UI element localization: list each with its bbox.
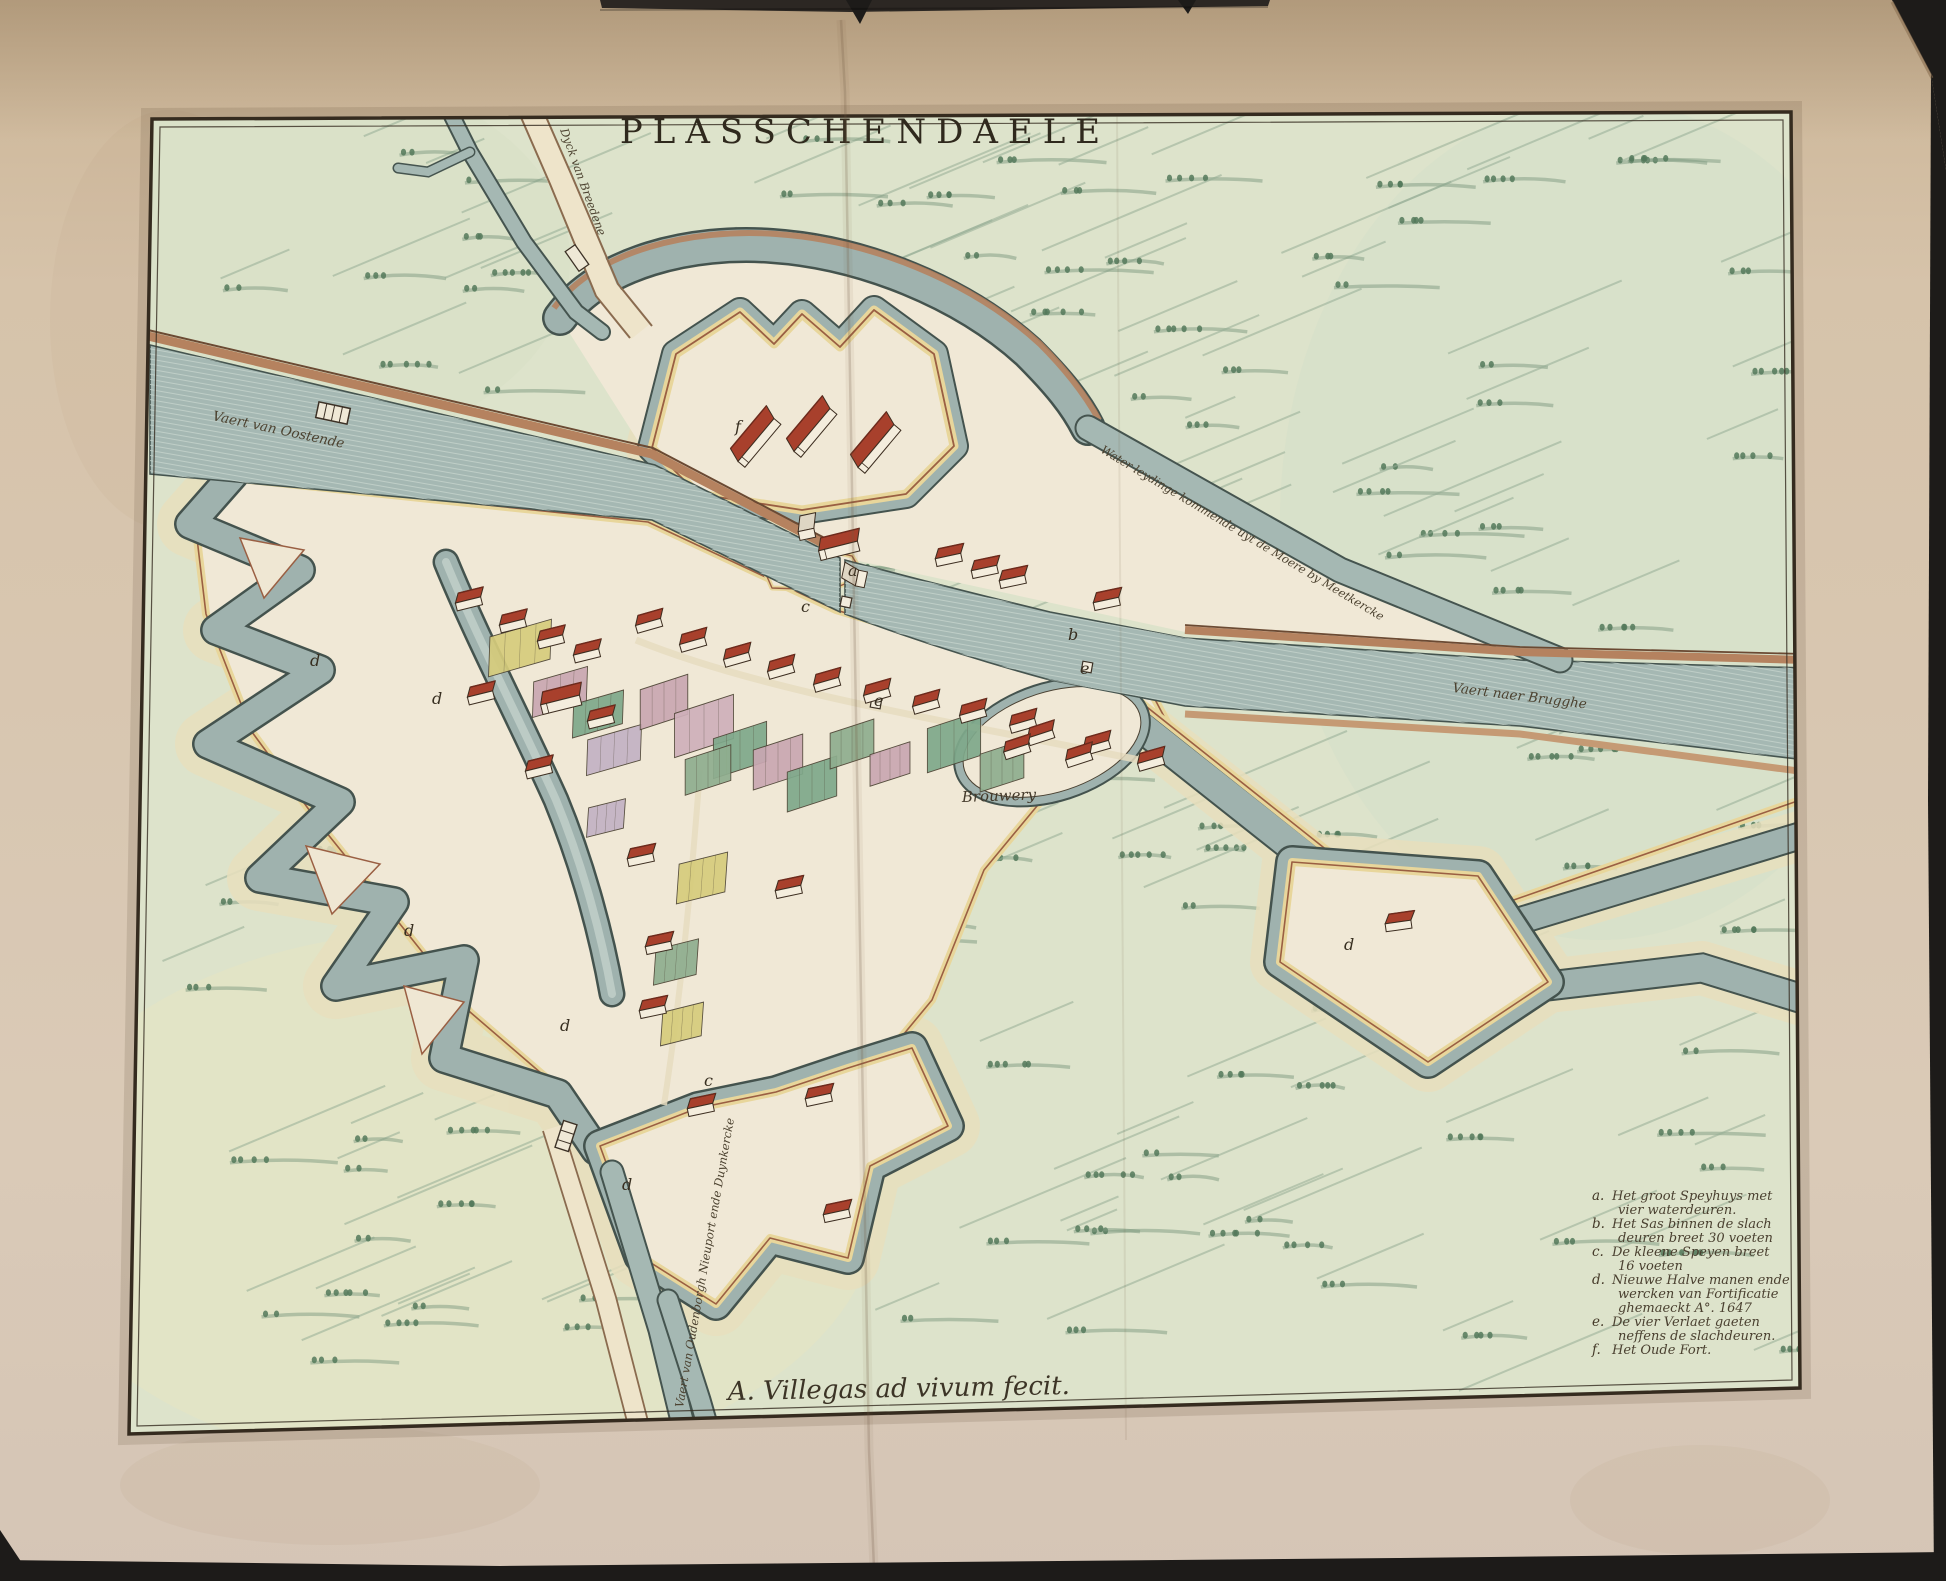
letter-d: d [310,651,320,670]
legend-key: f. [1591,1342,1601,1358]
legend-key: a. [1592,1188,1604,1204]
letter-d: d [622,1175,632,1194]
legend-line: 16 voeten [1618,1259,1683,1274]
map-plate: f a c c b e e d d d d d d PLASSCHENDAELE… [20,70,1920,1572]
legend-line: Het groot Speyhuys met [1611,1189,1773,1204]
letter-e: e [1080,659,1089,678]
legend-key: d. [1592,1272,1605,1288]
legend-line: ghemaeckt A°. 1647 [1618,1301,1753,1316]
legend-line: vier waterdeuren. [1618,1203,1736,1218]
letter-e: e [874,691,883,710]
legend-line: Het Sas binnen de slach [1611,1217,1772,1232]
letter-b: b [1068,625,1078,644]
letter-d: d [432,689,442,708]
legend-line: Nieuwe Halve manen ende [1611,1273,1790,1288]
letter-d: d [1344,935,1354,954]
antique-map-photo: f a c c b e e d d d d d d PLASSCHENDAELE… [0,0,1946,1581]
legend-line: De vier Verlaet gaeten [1611,1315,1760,1330]
label-brouwery: Brouwery [961,785,1037,806]
letter-c: c [704,1071,713,1090]
legend-key: e. [1592,1314,1604,1330]
legend-line: neffens de slachdeuren. [1618,1329,1775,1344]
letter-d: d [560,1016,570,1035]
legend-line: wercken van Fortificatie [1618,1287,1779,1302]
legend-key: b. [1592,1216,1605,1232]
legend-key: c. [1592,1244,1604,1260]
letter-c: c [801,597,810,616]
legend-line: De kleene Speyen breet [1611,1245,1770,1260]
legend-line: Het Oude Fort. [1611,1343,1711,1358]
legend-line: deuren breet 30 voeten [1618,1231,1773,1246]
letter-d: d [404,921,414,940]
